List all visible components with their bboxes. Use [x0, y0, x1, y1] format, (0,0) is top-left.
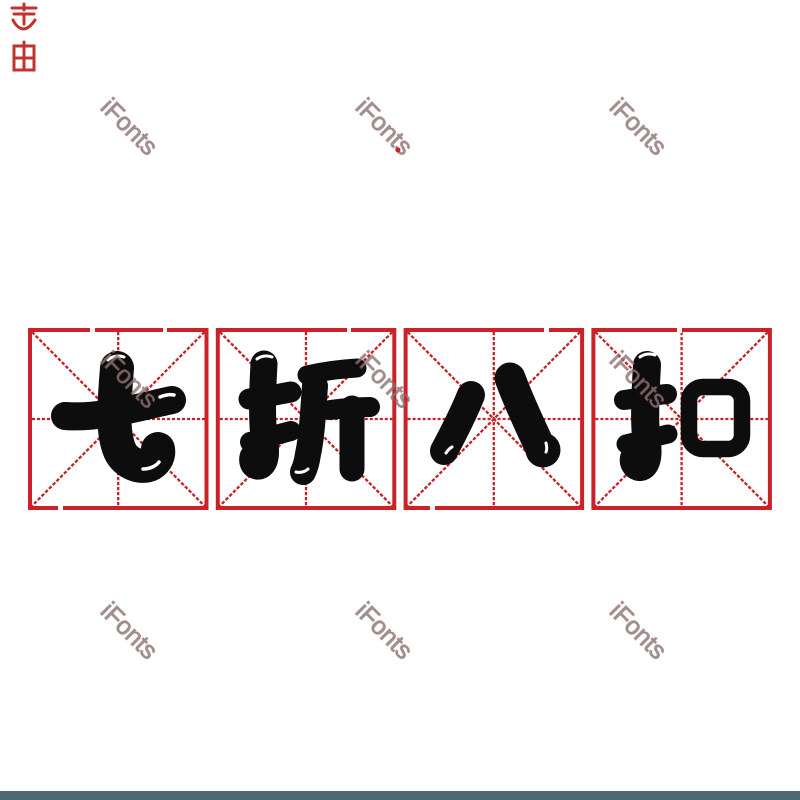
- svg-text:iFonts: iFonts: [95, 597, 163, 665]
- svg-text:iFonts: iFonts: [350, 597, 418, 665]
- svg-text:iFonts: iFonts: [604, 597, 672, 665]
- svg-text:iFonts: iFonts: [604, 93, 672, 161]
- svg-text:iFonts: iFonts: [350, 93, 418, 161]
- svg-text:iFonts: iFonts: [95, 93, 163, 161]
